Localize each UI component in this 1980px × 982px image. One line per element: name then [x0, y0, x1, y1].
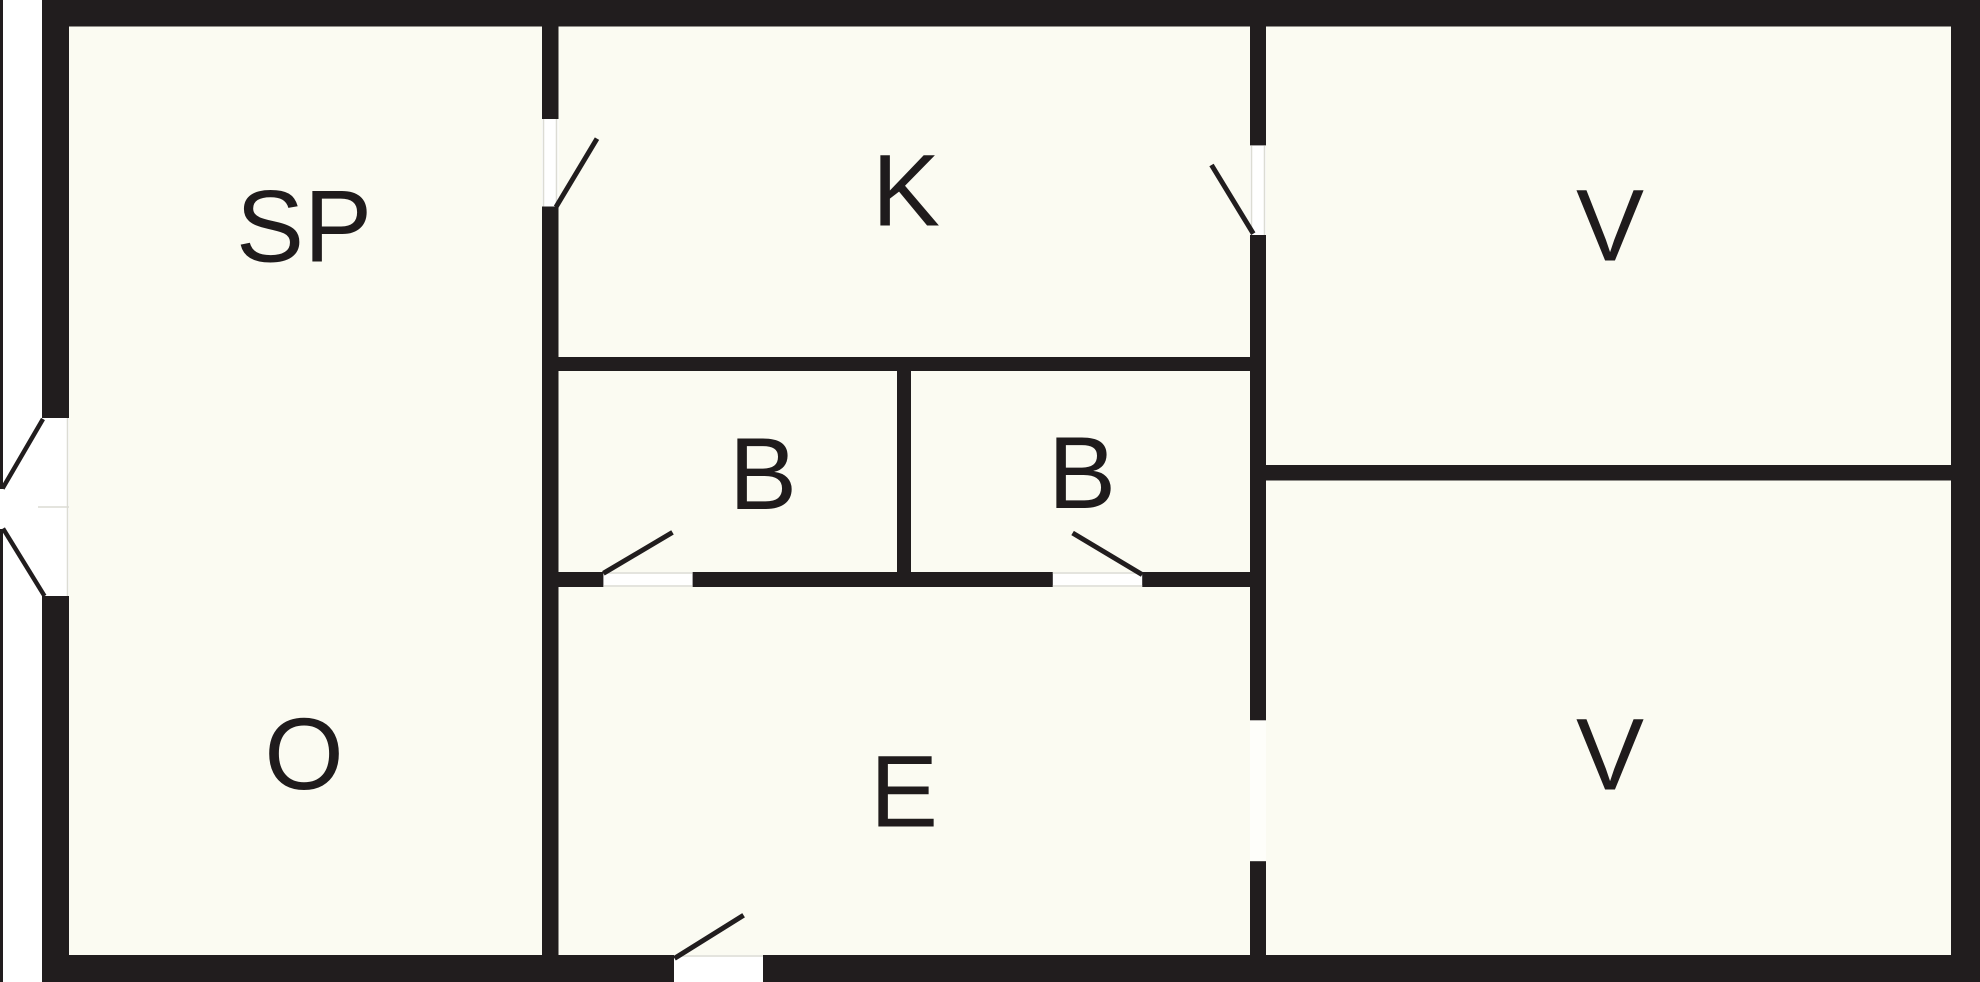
svg-text:O: O [264, 697, 343, 811]
svg-text:V: V [1576, 698, 1644, 812]
svg-text:B: B [729, 417, 797, 531]
svg-text:B: B [1048, 416, 1116, 530]
svg-text:SP: SP [236, 170, 372, 284]
svg-text:E: E [870, 735, 938, 849]
svg-text:K: K [872, 134, 940, 248]
svg-text:V: V [1576, 168, 1644, 282]
